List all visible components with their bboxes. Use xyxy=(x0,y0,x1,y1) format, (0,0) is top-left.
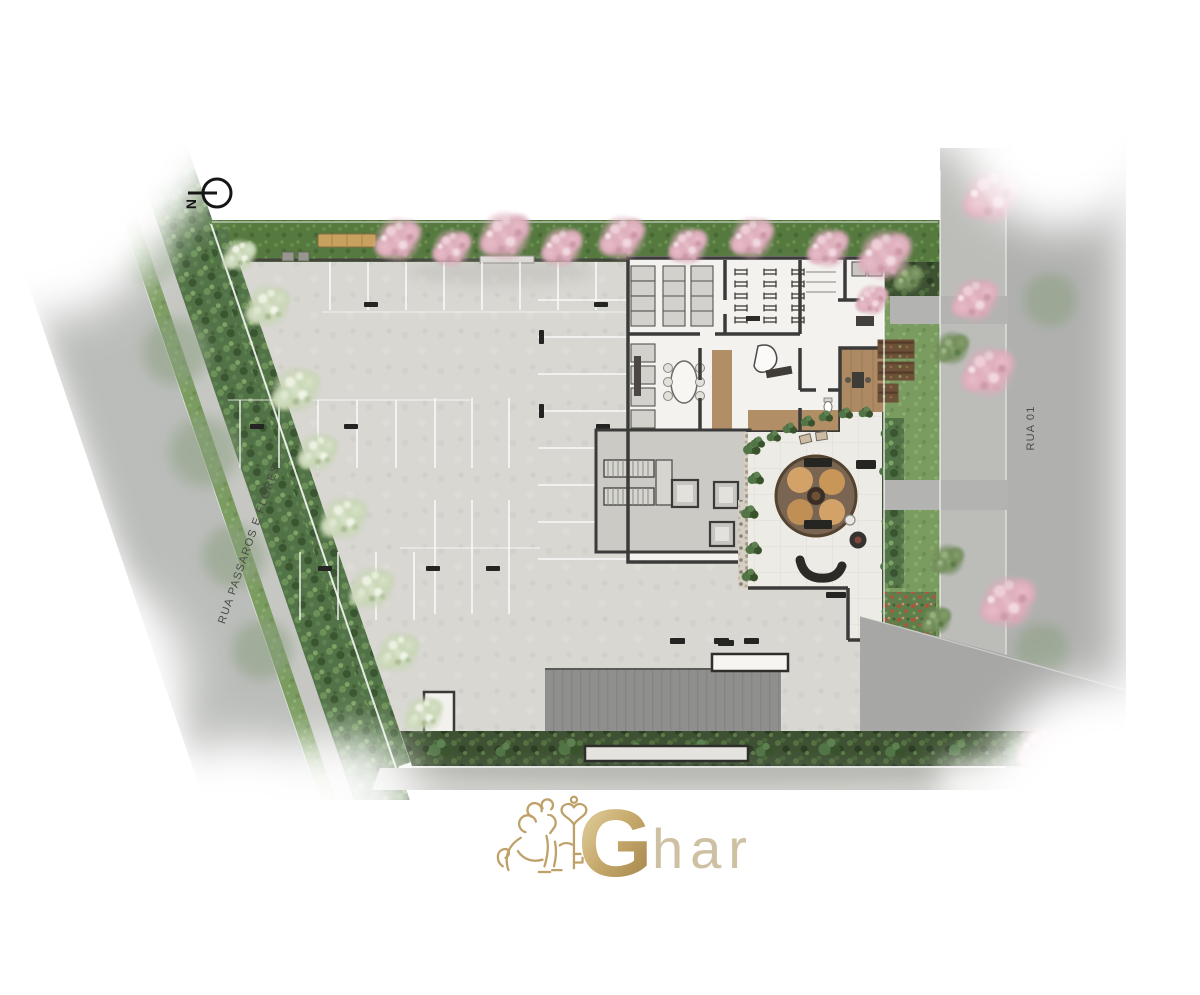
entrance-gate xyxy=(585,746,748,761)
building-core xyxy=(596,430,750,552)
garden-path xyxy=(884,480,1008,510)
grand-piano xyxy=(754,345,777,372)
site-plan-page: N RUA PASSAROS E FLORES RUA 01 G har xyxy=(0,0,1200,995)
logo-initial: G xyxy=(578,790,653,897)
meeting-table xyxy=(856,316,874,326)
side-table xyxy=(845,515,855,525)
wc-toilet xyxy=(824,398,832,413)
bottom-edge xyxy=(372,731,1038,790)
site-plan-svg: N RUA PASSAROS E FLORES RUA 01 G har xyxy=(0,0,1200,995)
wood-deck xyxy=(840,348,884,414)
street-label-right: RUA 01 xyxy=(1025,405,1037,450)
armchair xyxy=(850,532,867,549)
logo-wordmark: har xyxy=(652,817,754,880)
garden-bench xyxy=(318,234,376,247)
compass-north-label: N xyxy=(183,199,199,209)
